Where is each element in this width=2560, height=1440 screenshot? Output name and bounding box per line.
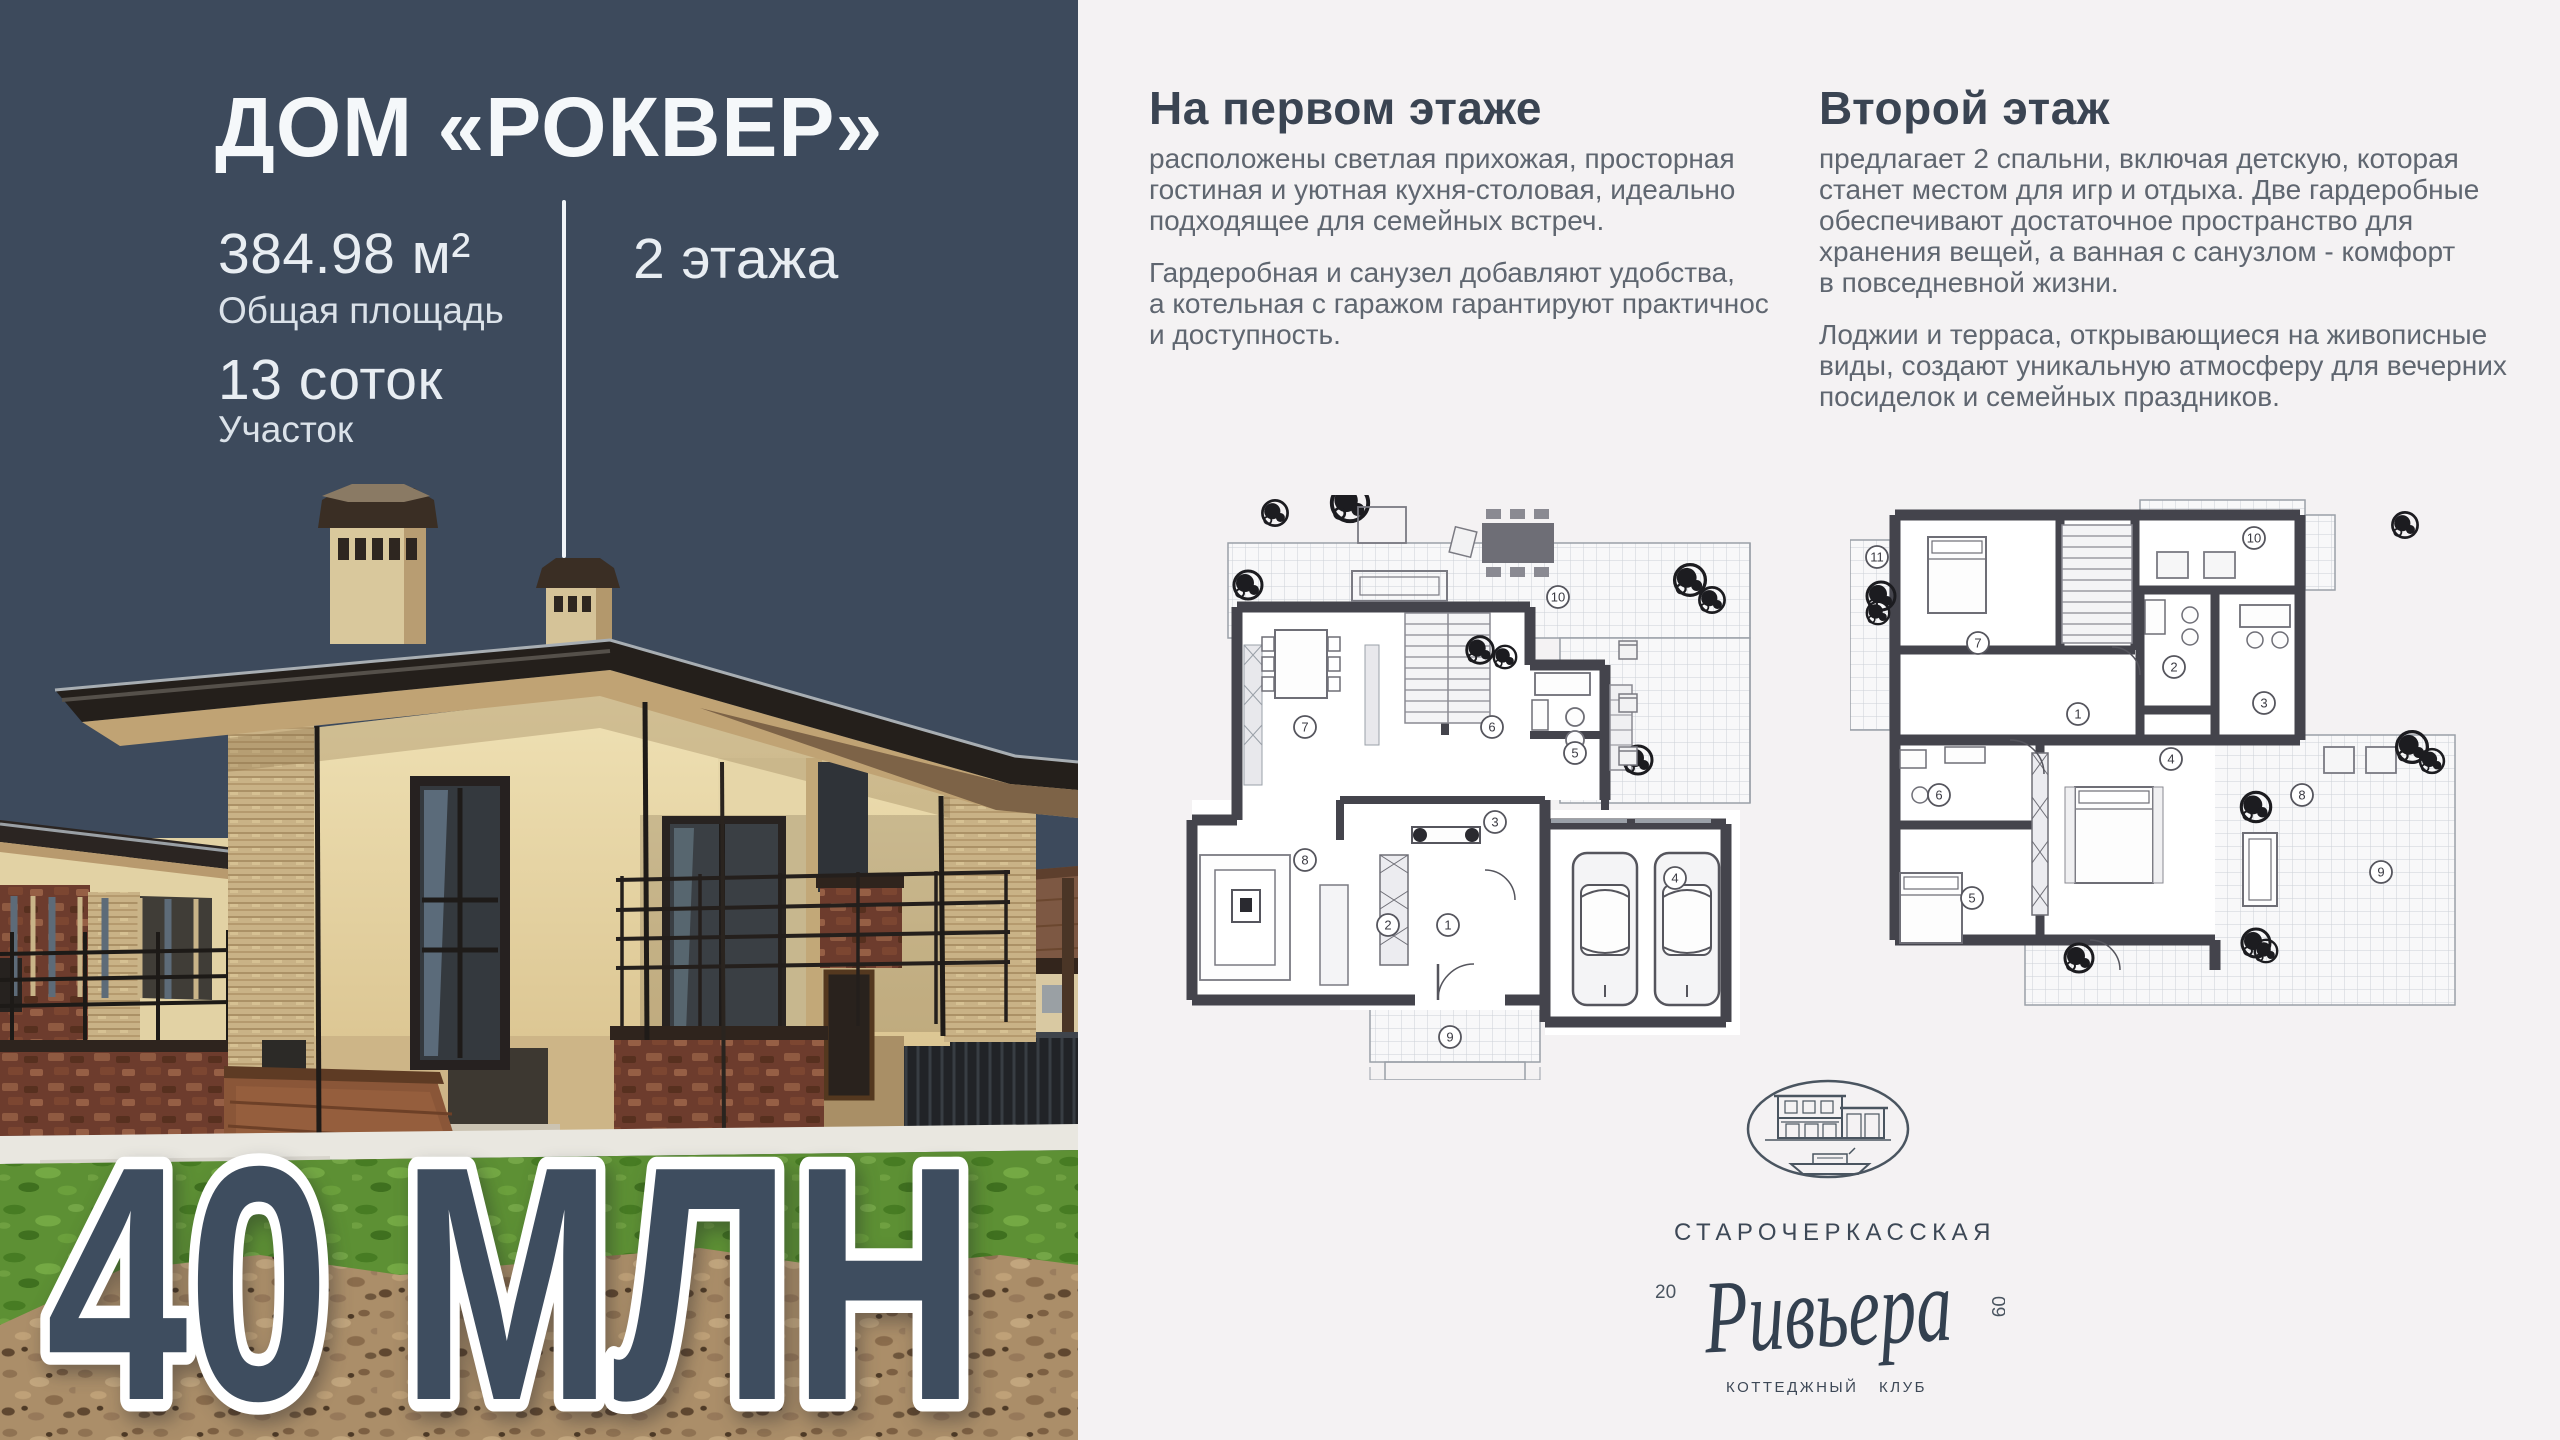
svg-text:4: 4 xyxy=(2167,752,2174,767)
svg-text:1: 1 xyxy=(1444,918,1451,933)
svg-text:СТАРОЧЕРКАССКАЯ: СТАРОЧЕРКАССКАЯ xyxy=(1674,1219,1996,1246)
svg-text:6: 6 xyxy=(1488,720,1495,735)
svg-text:5: 5 xyxy=(1571,746,1578,761)
svg-text:2: 2 xyxy=(1384,918,1391,933)
svg-text:09: 09 xyxy=(1987,1296,2005,1317)
svg-text:КОТТЕДЖНЫЙ: КОТТЕДЖНЫЙ xyxy=(1726,1378,1858,1396)
svg-text:Ривьера: Ривьера xyxy=(1700,1248,1954,1376)
svg-text:2: 2 xyxy=(2170,660,2177,675)
svg-text:11: 11 xyxy=(1870,550,1884,565)
svg-text:КЛУБ: КЛУБ xyxy=(1879,1379,1927,1396)
svg-text:5: 5 xyxy=(1968,891,1975,906)
svg-text:10: 10 xyxy=(1551,590,1565,605)
svg-text:7: 7 xyxy=(1974,636,1981,651)
svg-text:4: 4 xyxy=(1671,871,1678,886)
svg-text:40 МЛН: 40 МЛН xyxy=(46,1100,976,1440)
svg-text:3: 3 xyxy=(2260,696,2267,711)
svg-text:8: 8 xyxy=(1301,853,1308,868)
svg-text:7: 7 xyxy=(1301,720,1308,735)
svg-text:10: 10 xyxy=(2247,531,2261,546)
svg-text:3: 3 xyxy=(1491,815,1498,830)
svg-text:9: 9 xyxy=(2377,865,2384,880)
svg-text:1: 1 xyxy=(2074,707,2081,722)
svg-text:9: 9 xyxy=(1446,1030,1453,1045)
svg-text:20: 20 xyxy=(1655,1282,1676,1303)
svg-text:6: 6 xyxy=(1935,788,1942,803)
svg-text:8: 8 xyxy=(2298,788,2305,803)
